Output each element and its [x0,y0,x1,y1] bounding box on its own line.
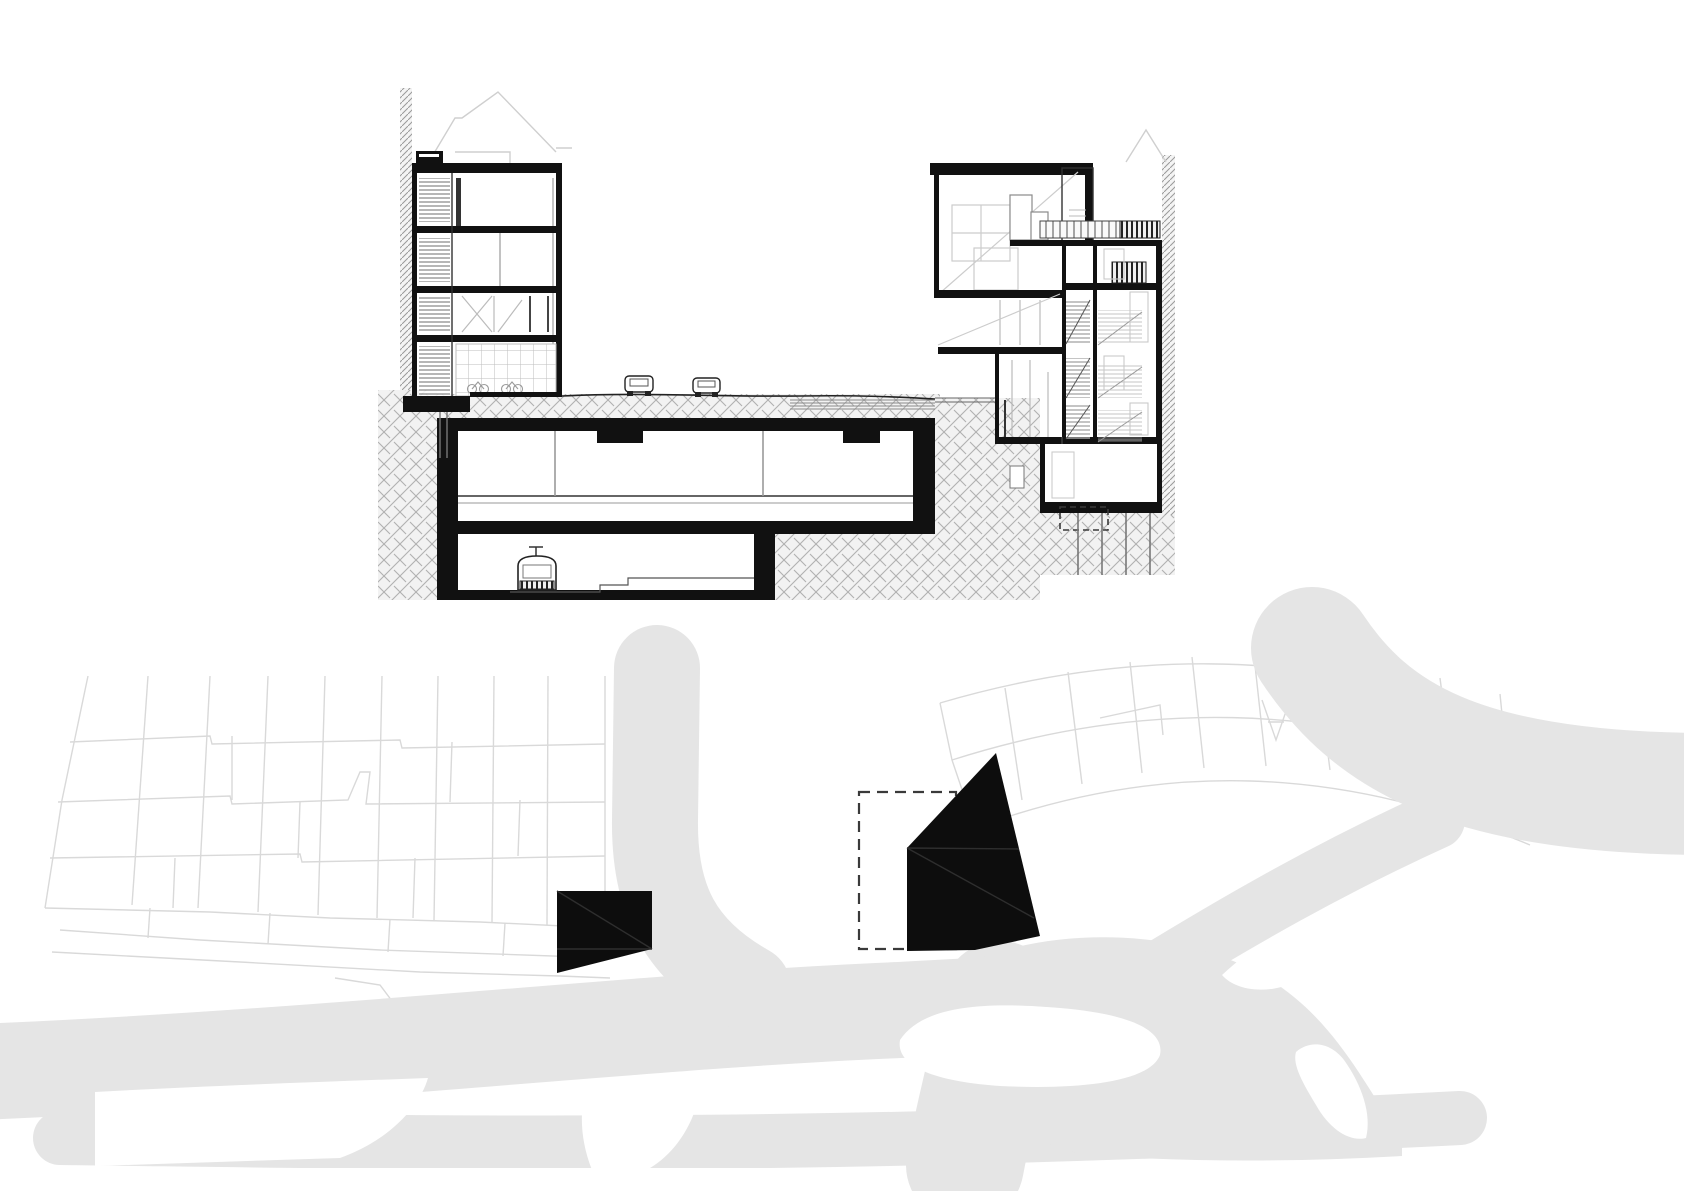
site-plan-parcels-left-block [45,676,610,1005]
left-building-roofbox-detail [419,154,439,157]
left-building-roof-slab [412,163,562,173]
left-building-base-line [470,392,562,397]
left-building-mullions-floor3 [530,296,548,332]
section-view [378,88,1175,600]
stair-core-wall-right [1093,240,1097,444]
left-building-slab-2 [412,226,562,233]
footprint-left-block [557,891,652,973]
station-roof-slab [437,418,935,443]
hall-floor-slab [934,290,1062,298]
ground-right-mid-block [935,398,1040,600]
metro-train [518,547,556,590]
party-wall-right-hatch [1162,155,1175,515]
left-building-wall-right [556,163,562,396]
wing-right-wall [1156,240,1162,444]
wing-roof-slab [1010,240,1162,246]
stair-flights-secondary [1098,310,1142,442]
left-building-gable-outline [427,92,572,165]
roof-terrace-railing-light [1040,221,1120,238]
tunnel-bottom-slab [437,590,775,600]
left-building-slab-4 [412,335,562,342]
left-building-mullion-f1 [456,178,461,226]
left-building-slab-3 [412,286,562,293]
train-bumper [520,581,554,589]
left-building-foundation [403,396,470,412]
wing-slab-2 [1062,283,1162,290]
left-building-braces-floor3 [462,296,522,332]
station-mid-slab [437,521,935,534]
site-plan [0,648,1684,1191]
party-wall-left-hatch [400,88,412,396]
hall-roof-slab [930,163,1093,175]
stair-core-wall-left [1062,243,1066,444]
drawing-sheet [0,0,1684,1191]
roof-terrace-railing-dark [1120,221,1160,238]
car-1 [625,376,653,396]
mid-level-slab [938,347,1062,354]
stair-flights-core [1066,300,1090,439]
right-building-gable-outline [1126,130,1166,162]
ground-door-box [1010,466,1024,488]
hall-left-wall [934,175,939,297]
road-diagonal-swath [1312,648,1684,794]
drawing-svg [0,0,1684,1191]
vent-striped-box [1112,262,1146,283]
train-pantograph [529,547,543,556]
ground-left-block [378,390,437,600]
station-right-wall [913,431,935,533]
sheet-bottom-white [0,1168,800,1191]
left-building-wall-left [412,163,417,396]
tunnel-right-wall [754,533,775,600]
upper-street-wall [995,354,999,444]
mid-level-interior [938,294,1060,345]
parapet-box-1 [1010,195,1032,240]
road-north-street [655,668,748,988]
basement-window [1052,452,1074,498]
ground-below-station [775,533,935,600]
